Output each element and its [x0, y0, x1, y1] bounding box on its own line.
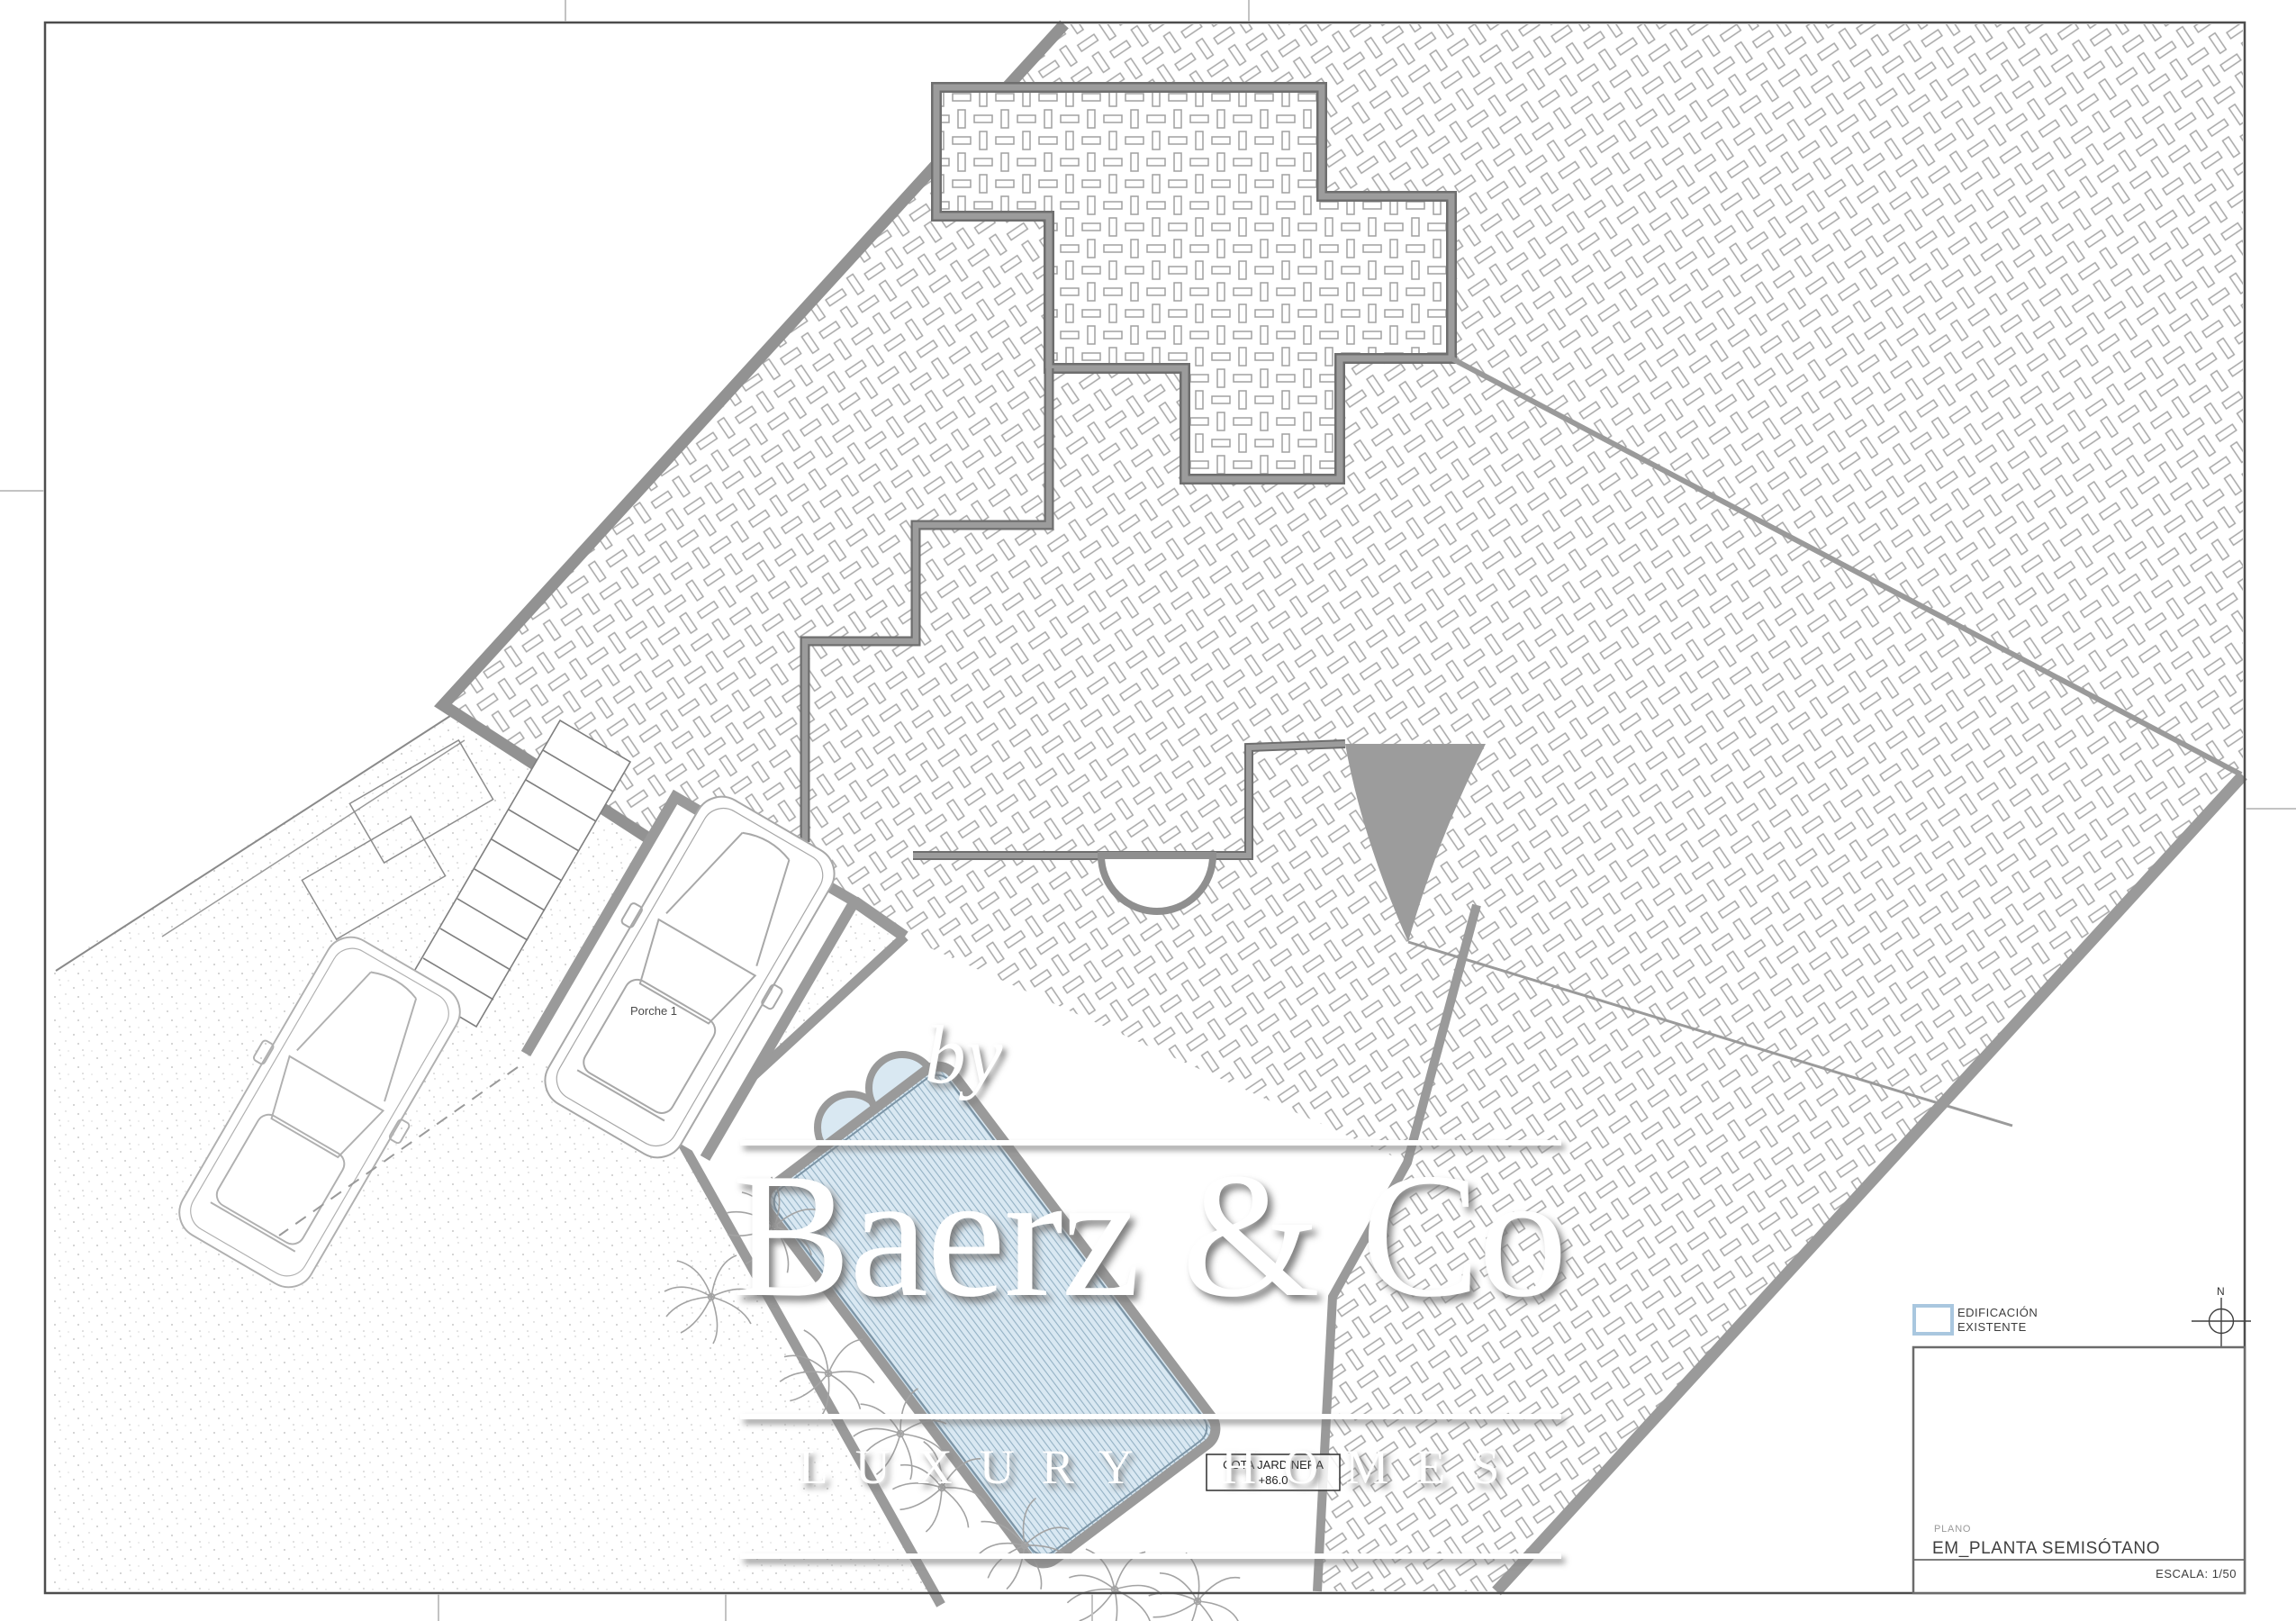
svg-text:EXISTENTE: EXISTENTE	[1957, 1320, 2027, 1334]
title-block: PLANO EM_PLANTA SEMISÓTANO ESCALA: 1/50	[1913, 1347, 2245, 1593]
legend-swatch	[1914, 1306, 1952, 1334]
north-compass-icon: N	[2192, 1285, 2251, 1346]
legend: EDIFICACIÓN EXISTENTE	[1914, 1306, 2038, 1334]
svg-text:+86.0: +86.0	[1259, 1473, 1288, 1487]
site-plan-canvas: Porche 1 COTA JARDINERA +86.0 EDIFICACIÓ…	[0, 0, 2296, 1621]
scale-label: ESCALA: 1/50	[2156, 1567, 2237, 1580]
plano-title: EM_PLANTA SEMISÓTANO	[1932, 1538, 2160, 1558]
svg-text:COTA JARDINERA: COTA JARDINERA	[1223, 1458, 1324, 1472]
porch-label: Porche 1	[630, 1004, 677, 1018]
cota-jardinera-label: COTA JARDINERA +86.0	[1207, 1454, 1340, 1490]
drawing-sheet: Porche 1 COTA JARDINERA +86.0 EDIFICACIÓ…	[0, 0, 2296, 1621]
svg-text:N: N	[2217, 1285, 2225, 1298]
plano-caption: PLANO	[1934, 1524, 1971, 1535]
svg-text:EDIFICACIÓN: EDIFICACIÓN	[1957, 1306, 2038, 1319]
